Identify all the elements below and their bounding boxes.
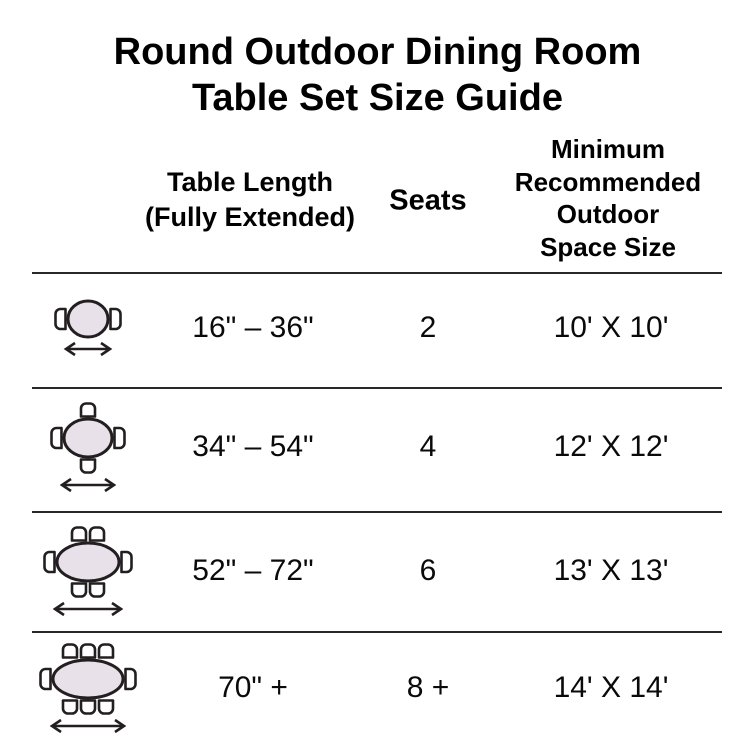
seats-value: 6	[420, 554, 437, 588]
space-size-value: 14' X 14'	[554, 671, 669, 705]
space-size-value: 12' X 12'	[554, 430, 669, 464]
size-guide-sheet: Round Outdoor Dining Room Table Set Size…	[0, 0, 755, 755]
seats-value: 8 +	[407, 671, 450, 705]
table-length-value: 16" – 36"	[192, 311, 313, 345]
table-6-seats-icon	[18, 523, 158, 619]
space-size-value: 10' X 10'	[554, 311, 669, 345]
column-header-seats: Seats	[389, 185, 466, 218]
page-title: Round Outdoor Dining Room Table Set Size…	[0, 30, 755, 121]
column-header-table-length: Table Length (Fully Extended)	[145, 165, 355, 235]
table-length-value: 70" +	[218, 671, 288, 705]
seats-value: 2	[420, 311, 437, 345]
page-title-line-2: Table Set Size Guide	[0, 76, 755, 122]
row-divider-line	[32, 511, 722, 513]
row-divider-line	[32, 631, 722, 633]
space-size-value: 13' X 13'	[554, 554, 669, 588]
row-divider-line	[32, 387, 722, 389]
header-divider-line	[32, 272, 722, 274]
table-8-seats-icon	[18, 640, 158, 736]
table-length-value: 52" – 72"	[192, 554, 313, 588]
table-4-seats-icon	[18, 399, 158, 495]
page-title-line-1: Round Outdoor Dining Room	[0, 30, 755, 76]
table-length-value: 34" – 54"	[192, 430, 313, 464]
seats-value: 4	[420, 430, 437, 464]
table-2-seats-icon	[18, 280, 158, 376]
column-header-space-size: Minimum Recommended Outdoor Space Size	[515, 133, 701, 263]
